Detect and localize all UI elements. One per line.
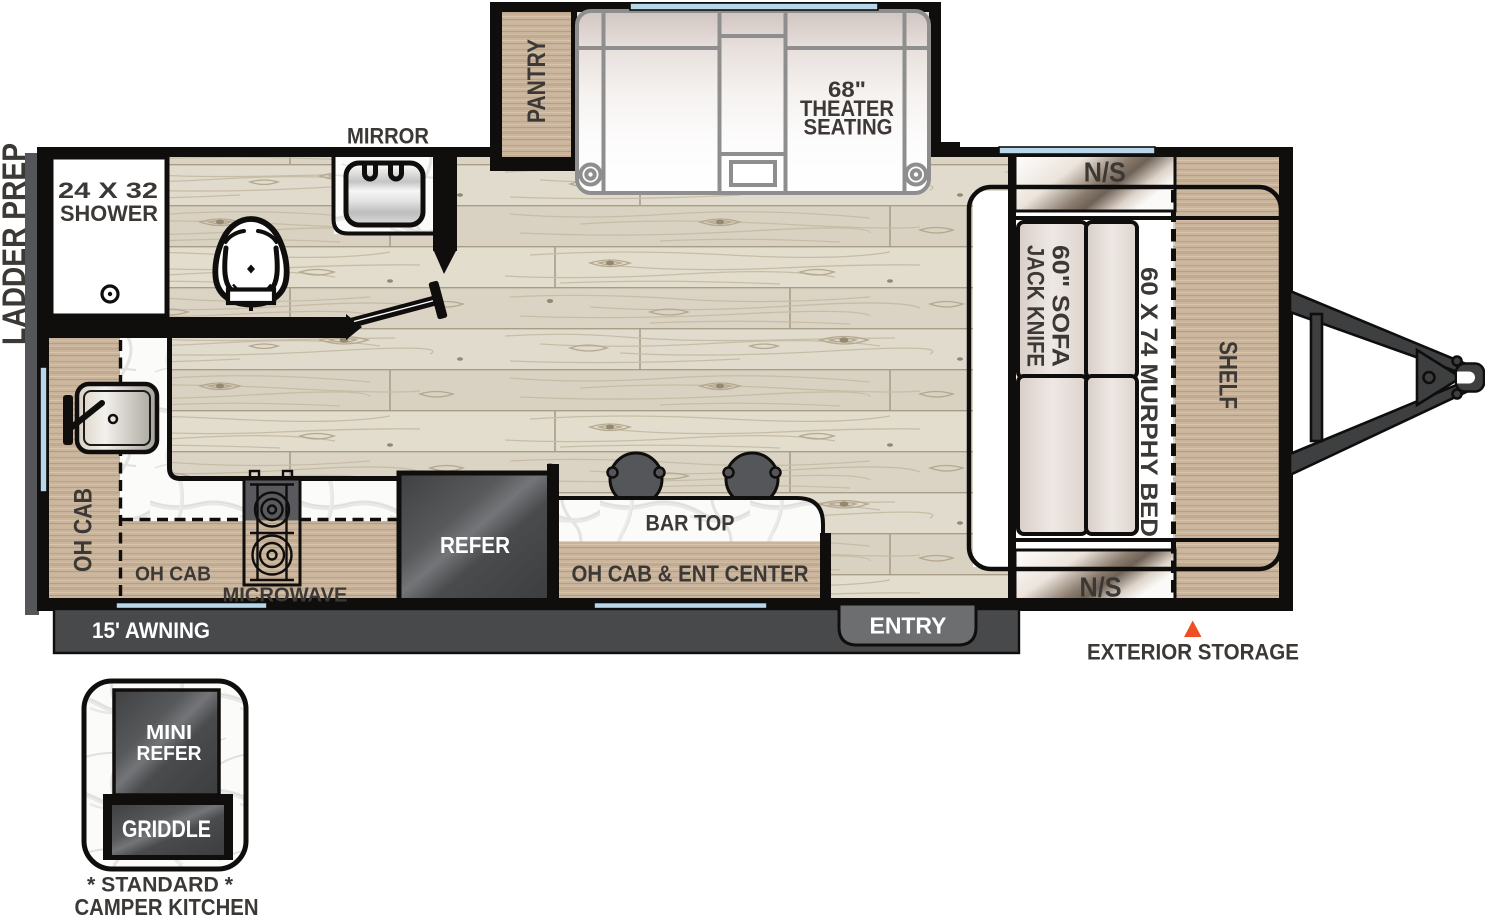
svg-text:OH CAB & ENT CENTER: OH CAB & ENT CENTER [572,561,809,587]
svg-text:OH CAB: OH CAB [135,563,211,586]
svg-text:MIRROR: MIRROR [347,124,429,149]
svg-text:REFER: REFER [137,743,203,765]
svg-text:GRIDDLE: GRIDDLE [122,816,211,843]
svg-text:60" SOFA: 60" SOFA [1047,245,1074,367]
svg-text:REFER: REFER [440,532,510,558]
svg-text:60 X 74 MURPHY BED: 60 X 74 MURPHY BED [1135,267,1162,537]
svg-text:BAR TOP: BAR TOP [646,511,735,536]
svg-text:SHELF: SHELF [1214,341,1242,409]
svg-text:N/S: N/S [1084,157,1126,188]
svg-text:24 X 32: 24 X 32 [58,178,158,203]
svg-text:SHOWER: SHOWER [60,201,158,226]
svg-text:OH CAB: OH CAB [70,488,98,572]
svg-text:EXTERIOR STORAGE: EXTERIOR STORAGE [1087,640,1299,665]
svg-text:LADDER PREP: LADDER PREP [0,143,32,345]
svg-text:JACK KNIFE: JACK KNIFE [1022,245,1049,367]
svg-text:SEATING: SEATING [804,115,893,140]
svg-text:MICROWAVE: MICROWAVE [223,584,348,607]
svg-text:15' AWNING: 15' AWNING [92,618,210,643]
svg-text:CAMPER KITCHEN: CAMPER KITCHEN [75,894,259,918]
svg-text:PANTRY: PANTRY [523,39,551,123]
svg-text:MINI: MINI [146,722,192,744]
svg-text:ENTRY: ENTRY [870,613,947,639]
svg-text:N/S: N/S [1080,572,1122,603]
